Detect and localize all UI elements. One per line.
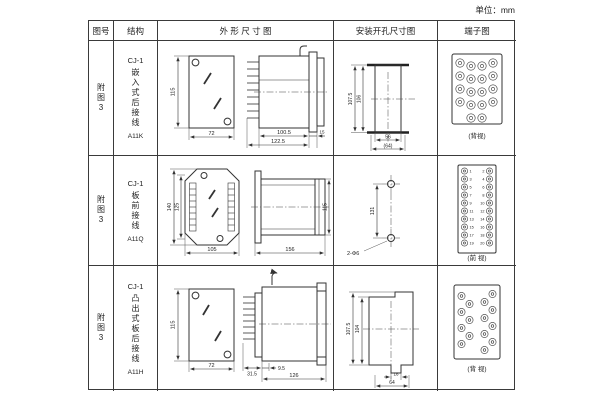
structure-name: 凸出式板后接线 — [130, 294, 141, 364]
terminal-caption: (背视) — [468, 131, 485, 140]
terminal-drawing-a11k: (背视) — [439, 42, 515, 155]
terminal-cell-row2: 12 34 56 78 910 1112 1314 1516 1718 1920… — [438, 156, 516, 266]
dim-depth: 100.5 — [277, 130, 291, 136]
terminal-drawing-a11q: 12 34 56 78 910 1112 1314 1516 1718 1920… — [439, 157, 515, 265]
dim-cut-h-inner: 104 — [355, 325, 361, 334]
mounting-cell-row3: 107.5 104 16 64 — [334, 266, 438, 391]
svg-text:12: 12 — [480, 209, 484, 213]
fig-label: 附图3 — [96, 313, 107, 344]
svg-text:2: 2 — [482, 169, 484, 173]
svg-text:13: 13 — [470, 217, 474, 221]
terminal-cell-row1: (背视) — [438, 41, 516, 156]
series-label: CJ-1 — [128, 56, 144, 65]
dim-cut-w: 64 — [389, 380, 395, 386]
dim-front-h-outer: 140 — [167, 202, 173, 211]
dim-front-w: 105 — [207, 247, 216, 253]
terminal-block-rear: (背 视) — [454, 285, 500, 373]
outline-cell-row1: 115 72 — [158, 41, 334, 156]
terminal-block-rear: (背视) — [452, 54, 502, 140]
svg-text:10: 10 — [480, 201, 484, 205]
series-label: CJ-1 — [128, 282, 144, 291]
front-view: 115 72 — [170, 56, 234, 140]
mounting-drawing-a11h: 107.5 104 16 64 — [335, 267, 437, 390]
svg-text:4: 4 — [482, 177, 484, 181]
svg-text:11: 11 — [470, 209, 474, 213]
dim-flange: 15 — [319, 129, 325, 134]
header-mounting: 安装开孔尺寸图 — [334, 21, 438, 41]
structure-name: 嵌入式后接线 — [130, 68, 141, 128]
spec-table: 图号 结构 外 形 尺 寸 图 安装开孔尺寸图 端子图 附图3 CJ-1 嵌入式… — [88, 20, 515, 390]
svg-text:15: 15 — [470, 225, 474, 229]
dim-body-len: 126 — [289, 373, 298, 379]
svg-text:3: 3 — [470, 177, 472, 181]
panel-cutout: 107.5 104 16 64 — [346, 292, 419, 388]
structure-cell-row1: CJ-1 嵌入式后接线 A11K — [114, 41, 158, 156]
hole-spec-label: 2-Φ6 — [347, 251, 359, 257]
outline-cell-row2: 140 125 105 156 — [158, 156, 334, 266]
svg-text:14: 14 — [480, 217, 484, 221]
model-code: A11H — [128, 369, 144, 376]
model-code: A11K — [128, 133, 143, 140]
dim-cut-h-inner: 106 — [356, 94, 362, 103]
series-label: CJ-1 — [128, 179, 144, 188]
outline-cell-row3: 115 72 — [158, 266, 334, 391]
dim-hole-pitch: 131 — [370, 206, 376, 215]
unit-label: 单位：mm — [88, 4, 515, 16]
terminal-caption: (背 视) — [467, 364, 486, 373]
front-view: 115 72 — [170, 289, 234, 372]
side-view: 156 115 — [251, 171, 331, 256]
outline-drawing-a11q: 140 125 105 156 — [159, 157, 333, 265]
mounting-drawing-a11q: 131 2-Φ6 — [335, 157, 437, 265]
dim-front-width: 72 — [208, 131, 214, 137]
svg-text:6: 6 — [482, 185, 484, 189]
dim-cut-h-outer: 107.5 — [346, 323, 352, 336]
fig-label: 附图3 — [96, 195, 107, 226]
terminal-cell-row3: (背 视) — [438, 266, 516, 391]
svg-text:19: 19 — [470, 241, 474, 245]
header-outline: 外 形 尺 寸 图 — [158, 21, 334, 41]
svg-text:9: 9 — [470, 201, 472, 205]
dim-cut-w-outer: (64) — [383, 143, 392, 149]
mounting-drawing-a11k: 107.5 106 56 (64) — [335, 42, 437, 155]
fig-label: 附图3 — [96, 83, 107, 114]
svg-text:16: 16 — [480, 225, 484, 229]
dim-side-h: 115 — [322, 202, 328, 210]
terminal-numbers: 12 34 56 78 910 1112 1314 1516 1718 1920 — [470, 169, 485, 245]
structure-cell-row3: CJ-1 凸出式板后接线 A11H — [114, 266, 158, 391]
model-code: A11Q — [127, 236, 143, 243]
panel-cutout: 107.5 106 56 (64) — [348, 65, 415, 151]
dim-total: 122.5 — [271, 139, 285, 145]
svg-text:7: 7 — [470, 193, 472, 197]
dim-front-width: 72 — [208, 363, 214, 369]
svg-text:1: 1 — [470, 169, 472, 173]
fig-cell-row2: 附图3 — [89, 156, 114, 266]
side-view: 100.5 122.5 15 — [247, 46, 329, 148]
header-terminal: 端子图 — [438, 21, 516, 41]
outline-drawing-a11h: 115 72 — [159, 267, 333, 390]
fig-cell-row3: 附图3 — [89, 266, 114, 391]
header-fig-no: 图号 — [89, 21, 114, 41]
svg-text:8: 8 — [482, 193, 484, 197]
structure-cell-row2: CJ-1 板前接线 A11Q — [114, 156, 158, 266]
dim-side-len: 156 — [285, 247, 294, 253]
svg-text:18: 18 — [480, 233, 484, 237]
dim-cut-w-inner: 56 — [385, 134, 391, 140]
dim-cut-h-outer: 107.5 — [348, 92, 354, 105]
front-view: 140 125 105 — [167, 169, 239, 256]
outline-drawing-a11k: 115 72 — [159, 42, 333, 155]
dim-pin-len: 31.5 — [247, 372, 257, 378]
terminal-drawing-a11h: (背 视) — [439, 267, 515, 390]
side-view: 31.5 9.5 126 — [243, 273, 331, 382]
dim-front-h-inner: 125 — [174, 202, 180, 211]
dim-front-height: 115 — [170, 321, 176, 330]
svg-text:5: 5 — [470, 185, 472, 189]
terminal-caption: (前 视) — [467, 253, 486, 262]
fig-cell-row1: 附图3 — [89, 41, 114, 156]
terminal-block-front: 12 34 56 78 910 1112 1314 1516 1718 1920… — [458, 165, 496, 262]
svg-text:20: 20 — [480, 241, 484, 245]
dim-tab-w: 16 — [393, 372, 399, 377]
mounting-cell-row2: 131 2-Φ6 — [334, 156, 438, 266]
mounting-cell-row1: 107.5 106 56 (64) — [334, 41, 438, 156]
dim-offset: 9.5 — [278, 366, 285, 372]
header-structure: 结构 — [114, 21, 158, 41]
structure-name: 板前接线 — [130, 191, 141, 231]
svg-text:17: 17 — [470, 233, 474, 237]
drill-holes: 131 2-Φ6 — [347, 175, 400, 257]
dim-front-height: 115 — [170, 87, 176, 96]
